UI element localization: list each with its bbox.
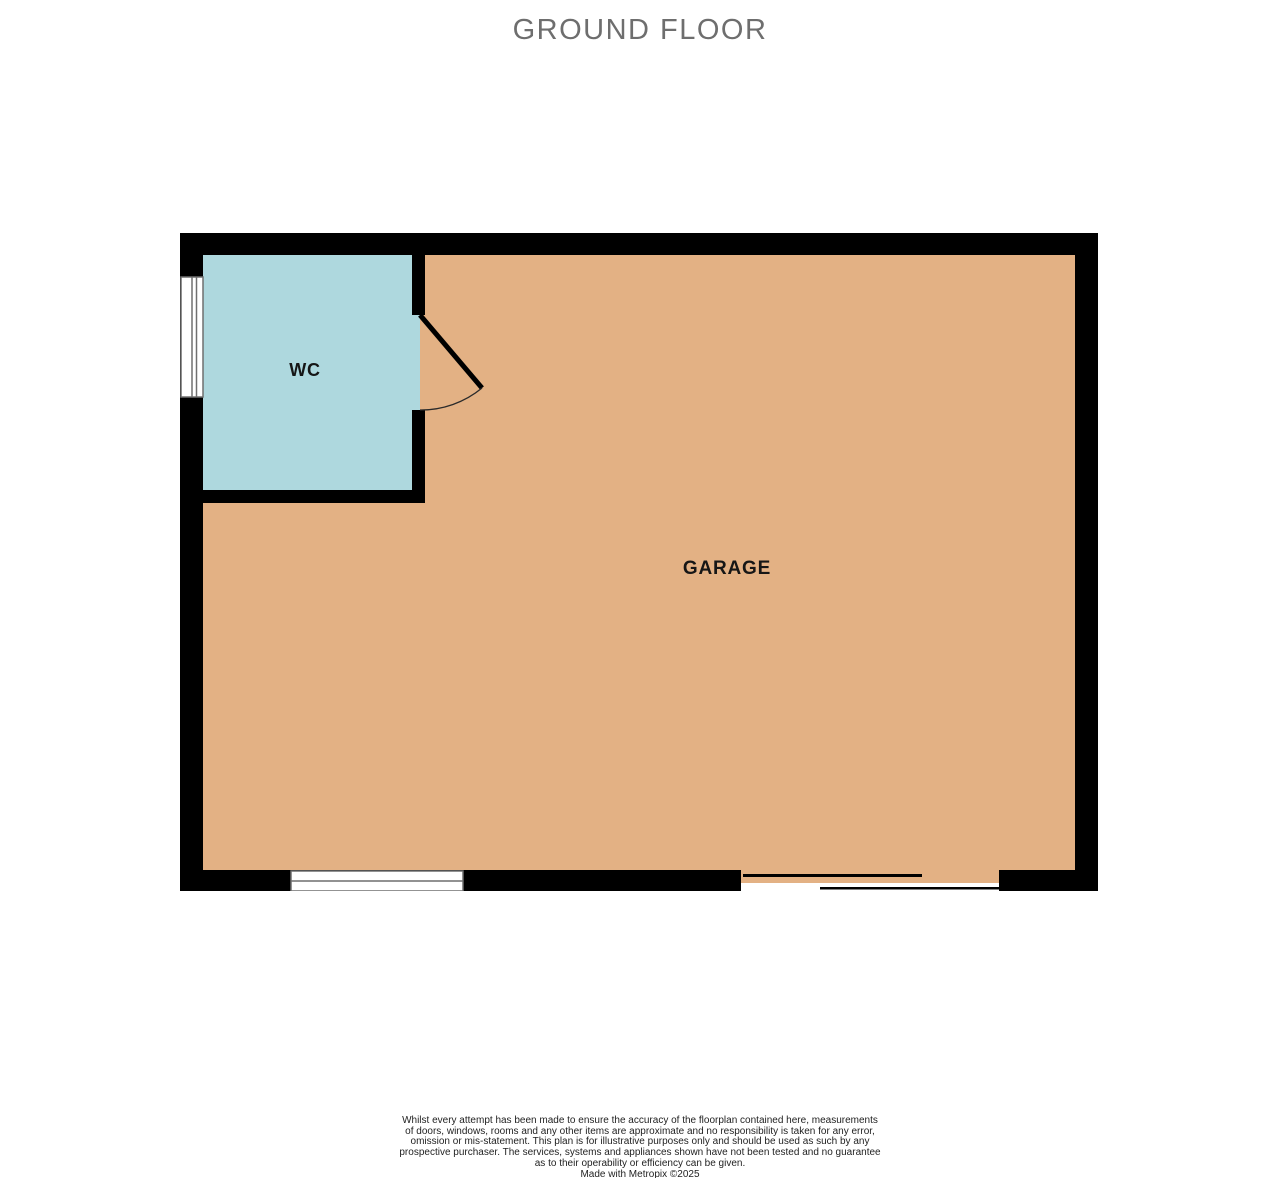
floorplan-page: GROUND FLOOR — [0, 0, 1280, 1178]
wc-wall-right-upper-stub — [412, 255, 425, 315]
wall-right — [1075, 233, 1098, 891]
wc-wall-right-lower-stub — [412, 410, 425, 503]
wall-top — [180, 233, 1098, 255]
wc-doorway-floor — [412, 315, 420, 410]
garage-door-line-inner — [743, 874, 922, 877]
wall-bottom-right-segment — [999, 870, 1098, 891]
garage-door-line-outer — [820, 887, 999, 890]
garage-window — [291, 871, 463, 891]
disclaimer: Whilst every attempt has been made to en… — [310, 1116, 970, 1178]
page-title: GROUND FLOOR — [0, 14, 1280, 47]
disclaimer-line-5: as to their operability or efficiency ca… — [310, 1159, 970, 1170]
room-label-garage: GARAGE — [577, 558, 877, 580]
credit-line: Made with Metropix ©2025 — [310, 1170, 970, 1178]
wc-window — [181, 277, 203, 397]
wc-wall-bottom — [203, 490, 425, 503]
room-label-wc: WC — [205, 360, 405, 381]
wc-doorway-threshold — [420, 315, 425, 410]
